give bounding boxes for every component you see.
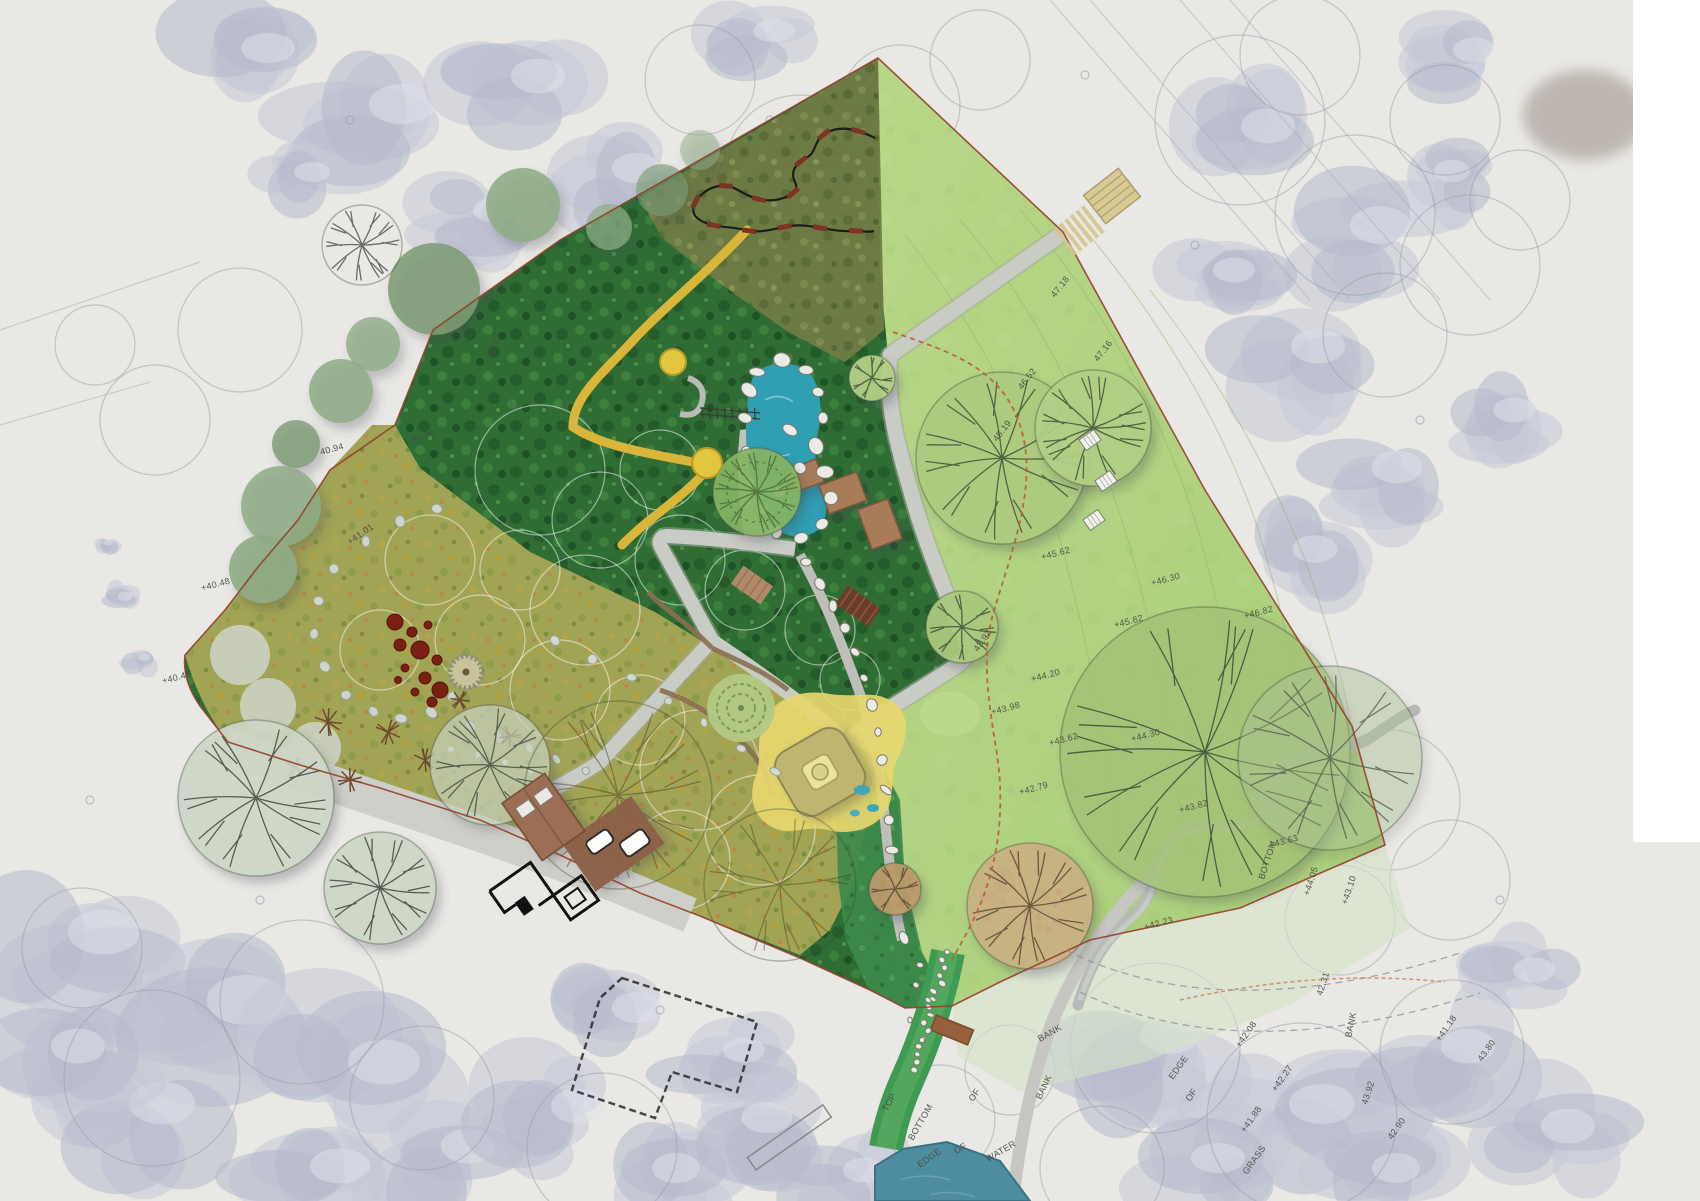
tree-canopy [1035, 370, 1151, 486]
stepping-stone [582, 767, 589, 775]
boulder [875, 728, 882, 737]
berry-planting-dot [432, 655, 442, 665]
berry-planting-dot [387, 614, 403, 630]
tree-canopy [324, 832, 436, 944]
trail-tie [849, 228, 863, 234]
berry-planting-dot [411, 688, 419, 696]
lawn-glade [920, 692, 980, 736]
berry-planting-dot [424, 621, 432, 629]
tree-canopy [869, 863, 921, 915]
boulder [913, 1059, 920, 1066]
stepping-stone [341, 690, 352, 700]
tree-canopy [849, 355, 895, 401]
berry-planting-dot [427, 697, 437, 707]
tree-canopy [713, 448, 801, 536]
trail-tie [719, 183, 733, 189]
tree-canopy [1238, 666, 1422, 850]
boulder [941, 964, 948, 971]
tree-canopy [178, 720, 334, 876]
berry-planting-dot [419, 672, 431, 684]
paper-white-strip [1633, 0, 1700, 842]
grass-labyrinth [707, 674, 775, 742]
proposed-tree [680, 130, 720, 170]
boulder [919, 1037, 925, 1043]
play-trail-node [660, 349, 686, 375]
boulder [829, 600, 838, 613]
proposed-tree [272, 420, 320, 468]
masterplan-image: 47.1847.1646.5245.19+45.62+46.30+46.82+4… [0, 0, 1700, 1201]
stepping-stone [664, 697, 672, 705]
proposed-tree [309, 359, 373, 423]
berry-planting-dot [394, 639, 406, 651]
berry-planting-dot [411, 641, 429, 659]
masterplan-svg: 47.1847.1646.5245.19+45.62+46.30+46.82+4… [0, 0, 1700, 1201]
berry-planting-dot [401, 664, 409, 672]
play-trail-node [692, 448, 722, 478]
proposed-tree [241, 466, 321, 546]
berry-planting-dot [395, 677, 402, 684]
boulder [816, 465, 834, 478]
berry-planting-dot [432, 682, 448, 698]
tree-canopy [967, 843, 1093, 969]
boulder [916, 962, 924, 968]
proposed-tree [388, 243, 480, 335]
meadow-bay [210, 625, 270, 685]
proposed-tree [586, 204, 632, 250]
boulder [801, 558, 812, 566]
gravel-dial [450, 656, 482, 688]
proposed-tree [486, 168, 560, 242]
aerial-tree-blob [94, 538, 121, 554]
aerial-tree-blob-brown [1523, 70, 1647, 160]
boulder [907, 1017, 912, 1024]
boulder [915, 1043, 923, 1050]
berry-planting-dot [407, 627, 417, 637]
